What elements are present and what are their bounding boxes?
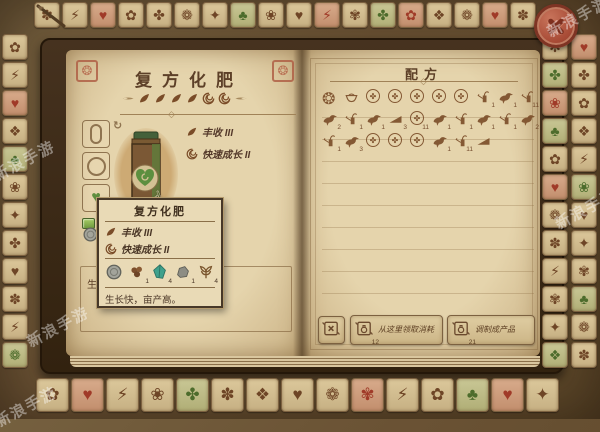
effect-row: 丰收 III [105, 224, 215, 239]
sparkle-icon: ✤ [578, 67, 590, 84]
star-icon: ✦ [549, 319, 561, 336]
heart-card[interactable]: ♥ [286, 2, 312, 28]
clover-icon: ♣ [579, 291, 588, 307]
gem-icon: ❖ [255, 385, 270, 405]
sparkle-card[interactable]: ✤ [571, 62, 597, 88]
flower-icon: ✿ [125, 7, 137, 24]
medallion-stamp: ✤11 [410, 111, 425, 127]
bowl-stamp [344, 89, 359, 105]
star-icon: ✦ [535, 385, 549, 405]
ingredient-count: 4 [214, 278, 218, 285]
petal-icon: ✽ [517, 7, 529, 24]
tooltip-title: 复方化肥 [105, 203, 215, 219]
heart-icon: ♥ [580, 207, 588, 223]
gem-icon: ❖ [9, 123, 22, 140]
flower-card[interactable]: ✿ [398, 2, 424, 28]
blossom-icon: ❀ [578, 179, 590, 196]
heart-card[interactable]: ♥ [71, 378, 104, 412]
craft-product-button[interactable]: 21 调制成产品 [447, 315, 535, 345]
petal-icon: ✽ [220, 385, 234, 405]
swirl-icon [186, 148, 198, 160]
star-card[interactable]: ✦ [542, 314, 568, 340]
blossom-card[interactable]: ❀ [258, 2, 284, 28]
border-tiles-right-outer: ♥✤✿❖⚡❀♥✦✾♣❁✽ [571, 34, 597, 368]
effect-row: 快速成长 II [186, 146, 250, 161]
lightning-card[interactable]: ⚡ [2, 314, 28, 340]
quill-stick-icon [34, 2, 68, 30]
sparkle-card[interactable]: ✤ [176, 378, 209, 412]
tooltip-ingredients: 1414 [105, 261, 215, 285]
circle-icon [87, 157, 106, 176]
slot-capsule[interactable] [82, 120, 110, 148]
gem-card[interactable]: ❖ [542, 342, 568, 368]
heart-icon: ♥ [11, 263, 19, 279]
medallion-stamp: ✤ [366, 133, 381, 149]
effect-row: 丰收 III [186, 124, 250, 139]
petal-card[interactable]: ✽ [510, 2, 536, 28]
heart-icon: ♥ [11, 95, 19, 111]
recipe-row: ❂✤✤✤✤✤1111 [322, 86, 535, 108]
stamp-count: 1 [337, 146, 341, 153]
daisy-card[interactable]: ❁ [2, 342, 28, 368]
medallion-stamp: ✤ [388, 133, 403, 149]
coin-stamp-stamp: ❂ [322, 89, 337, 105]
leaf-icon [154, 92, 167, 105]
can-stamp: 1 [454, 111, 469, 127]
flourish-right-icon [235, 92, 248, 105]
stamp-count: 1 [447, 124, 451, 131]
can-stamp: 11 [520, 89, 535, 105]
swirl-icon [218, 92, 231, 105]
flower-card[interactable]: ✿ [542, 146, 568, 172]
heart-card[interactable]: ♥ [542, 174, 568, 200]
daisy-card[interactable]: ❁ [174, 2, 200, 28]
gem-card[interactable]: ❖ [426, 2, 452, 28]
ingredient-count: 4 [168, 278, 172, 285]
border-tiles-bottom: ✿♥⚡❀✤✽❖♥❁✾⚡✿♣♥✦ [36, 378, 559, 412]
border-tiles-left: ✿⚡♥❖♣❀✦✤♥✽⚡❁ [2, 34, 28, 368]
medallion-stamp: ✤ [432, 89, 447, 105]
flower-card[interactable]: ✿ [36, 378, 69, 412]
flower-icon: ✿ [9, 39, 21, 56]
page-stack-edge [70, 356, 540, 367]
leaf-icon [170, 92, 183, 105]
heart-icon: ♥ [99, 7, 107, 23]
petal-card[interactable]: ✽ [571, 342, 597, 368]
daisy-card[interactable]: ❁ [571, 314, 597, 340]
effect-row: 快速成长 II [105, 241, 215, 256]
lightning-card[interactable]: ⚡ [2, 62, 28, 88]
item-tooltip: 复方化肥 丰收 III快速成长 II 1414 生长快，亩产高。 [97, 198, 223, 308]
daisy-icon: ❁ [181, 7, 193, 24]
stamp-count: 3 [359, 146, 363, 153]
blossom-card[interactable]: ❀ [141, 378, 174, 412]
bloom-icon: ✾ [349, 7, 361, 24]
daisy-icon: ❁ [461, 7, 473, 24]
heart-icon: ♥ [502, 385, 512, 405]
clover-card[interactable]: ♣ [571, 286, 597, 312]
bloom-card[interactable]: ✾ [542, 286, 568, 312]
close-icon [537, 7, 575, 45]
sparkle-card[interactable]: ✤ [370, 2, 396, 28]
coin-gray-ingredient [105, 263, 123, 282]
stamp-count: 1 [447, 146, 451, 153]
lightning-icon: ⚡ [10, 67, 20, 84]
heart-icon: ♥ [491, 7, 499, 23]
bird-stamp: 1 [498, 89, 513, 105]
heart-icon: ♥ [82, 385, 92, 405]
button-badge: 21 [469, 339, 476, 346]
lightning-card[interactable]: ⚡ [314, 2, 340, 28]
gem-icon: ❖ [578, 123, 591, 140]
heart-card[interactable]: ♥ [2, 258, 28, 284]
sparkle-icon: ✤ [9, 235, 21, 252]
gem-icon: ❖ [433, 7, 446, 24]
sparkle-card[interactable]: ✤ [2, 230, 28, 256]
flower-card[interactable]: ✿ [421, 378, 454, 412]
bird-stamp: 1 [432, 111, 447, 127]
sparkle-icon: ✤ [377, 7, 389, 24]
flower-card[interactable]: ✿ [571, 90, 597, 116]
recipe-row: 13✤✤✤111 [322, 130, 535, 152]
slot-circle[interactable] [82, 152, 110, 180]
flower-icon: ✿ [45, 385, 59, 405]
clover-card[interactable]: ♣ [542, 118, 568, 144]
take-consumables-button[interactable]: 12 从这里领取消耗 [350, 315, 443, 345]
effect-label: 丰收 III [121, 224, 152, 239]
effect-label: 快速成长 II [121, 241, 169, 256]
sparkle-icon: ✤ [153, 7, 165, 24]
stamp-count: 3 [403, 124, 407, 131]
heart-card[interactable]: ♥ [482, 2, 508, 28]
clover-icon: ♣ [550, 123, 559, 139]
clover-icon: ♣ [10, 151, 19, 167]
bird-stamp: 2 [520, 111, 535, 127]
heart-card[interactable]: ♥ [571, 202, 597, 228]
flower-icon: ✿ [578, 95, 590, 112]
header-divider [120, 114, 296, 115]
scroll-flask-icon: 21 [452, 318, 471, 343]
lightning-card[interactable]: ⚡ [106, 378, 139, 412]
button-label: 调制成产品 [475, 325, 515, 335]
bird-stamp: 3 [344, 133, 359, 149]
star-icon: ✦ [209, 7, 221, 24]
lightning-card[interactable]: ⚡ [571, 146, 597, 172]
crystal-ingredient: 4 [151, 263, 169, 282]
leaf-icon [186, 126, 198, 138]
daisy-icon: ❁ [325, 385, 339, 405]
can-stamp: 1 [498, 111, 513, 127]
flower-icon: ✿ [430, 385, 444, 405]
gem-card[interactable]: ❖ [2, 118, 28, 144]
flower-card[interactable]: ✿ [2, 34, 28, 60]
daisy-card[interactable]: ❁ [316, 378, 349, 412]
star-card[interactable]: ✦ [202, 2, 228, 28]
heart-card[interactable]: ♥ [2, 90, 28, 116]
medallion-stamp: ✤ [410, 89, 425, 105]
stamp-count: 1 [513, 124, 517, 131]
lightning-icon: ⚡ [10, 319, 20, 336]
bird-stamp: 1 [366, 111, 381, 127]
plow-stamp [476, 133, 491, 149]
tooltip-description: 生长快，亩产高。 [105, 290, 215, 306]
medallion-stamp: ✤ [388, 89, 403, 105]
blossom-icon: ❀ [549, 95, 561, 112]
button-badge: 12 [372, 339, 379, 346]
petal-card[interactable]: ✽ [211, 378, 244, 412]
hemp-ingredient: 4 [197, 263, 215, 282]
stamp-count: 1 [491, 124, 495, 131]
daisy-card[interactable]: ❁ [542, 202, 568, 228]
leaf-icon [186, 92, 199, 105]
border-tiles-top: ✽⚡♥✿✤❁✦♣❀♥⚡✾✤✿❖❁♥✽ [34, 2, 536, 28]
leaf-icon [138, 92, 151, 105]
game-screen: { "watermark": "新浪手游", "left_page": { "t… [0, 0, 600, 419]
stamp-count: 11 [532, 102, 539, 109]
petal-icon: ✽ [9, 291, 21, 308]
stamp-count: 11 [422, 124, 429, 131]
blossom-card[interactable]: ❀ [571, 174, 597, 200]
stone-ingredient: 1 [174, 263, 192, 282]
flower-icon: ✿ [405, 7, 417, 24]
sparkle-card[interactable]: ✤ [542, 62, 568, 88]
plow-stamp: 3 [388, 111, 403, 127]
effect-label: 丰收 III [202, 124, 233, 139]
swirl-icon [202, 92, 215, 105]
bloom-card[interactable]: ✾ [351, 378, 384, 412]
daisy-card[interactable]: ❁ [454, 2, 480, 28]
recipe-row: 2113✤1111112 [322, 108, 535, 130]
scroll-x-icon [322, 318, 341, 343]
can-stamp: 11 [454, 133, 469, 149]
clear-recipe-button[interactable] [318, 316, 345, 344]
lightning-card[interactable]: ⚡ [542, 258, 568, 284]
lightning-icon: ⚡ [397, 385, 409, 405]
star-icon: ✦ [578, 235, 590, 252]
clover-card[interactable]: ♣ [230, 2, 256, 28]
petal-card[interactable]: ✽ [2, 286, 28, 312]
daisy-icon: ❁ [549, 207, 561, 224]
blossom-icon: ❀ [265, 7, 277, 24]
title-flourish [66, 92, 302, 105]
scroll-flask-icon: 12 [355, 318, 374, 343]
stamp-count: 1 [359, 124, 363, 131]
bird-stamp: 1 [476, 111, 491, 127]
effect-list: 丰收 III快速成长 II [186, 124, 250, 161]
bloom-icon: ✾ [360, 385, 374, 405]
stamp-count: 1 [469, 124, 473, 131]
blossom-icon: ❀ [150, 385, 164, 405]
clover-card[interactable]: ♣ [456, 378, 489, 412]
star-card[interactable]: ✦ [526, 378, 559, 412]
gem-card[interactable]: ❖ [246, 378, 279, 412]
blossom-card[interactable]: ❀ [2, 174, 28, 200]
heart-icon: ♥ [551, 179, 559, 195]
star-icon: ✦ [9, 207, 21, 224]
clover-icon: ♣ [238, 7, 247, 23]
petal-icon: ✽ [578, 347, 590, 364]
lightning-icon: ⚡ [550, 263, 560, 280]
leaf-icon [105, 226, 117, 238]
flourish-icons [138, 92, 231, 105]
bloom-card[interactable]: ✾ [342, 2, 368, 28]
divider-diamond-icon: ◇ [168, 109, 175, 120]
sparkle-icon: ✤ [549, 67, 561, 84]
medallion-stamp: ✤ [366, 89, 381, 105]
border-tiles-right-inner: ✻✤❀♣✿♥❁✽⚡✾✦❖ [542, 34, 568, 368]
flourish-left-icon [121, 92, 134, 105]
lightning-icon: ⚡ [70, 7, 80, 24]
stamp-count: 1 [491, 102, 495, 109]
bird-stamp: 2 [322, 111, 337, 127]
heart-icon: ♥ [580, 39, 588, 55]
star-card[interactable]: ✦ [571, 230, 597, 256]
clover-icon: ♣ [467, 385, 478, 405]
heart-card[interactable]: ♥ [491, 378, 524, 412]
heart-icon: ♥ [295, 7, 303, 23]
lightning-card[interactable]: ⚡ [386, 378, 419, 412]
lightning-icon: ⚡ [117, 385, 129, 405]
heart-card[interactable]: ♥ [90, 2, 116, 28]
effect-label: 快速成长 II [202, 146, 250, 161]
stamp-count: 2 [337, 124, 341, 131]
bird-stamp: 1 [432, 133, 447, 149]
close-button[interactable] [534, 4, 578, 48]
berries-ingredient: 1 [128, 263, 146, 282]
heart-icon: ♥ [292, 385, 302, 405]
gem-card[interactable]: ❖ [571, 118, 597, 144]
flower-card[interactable]: ✿ [118, 2, 144, 28]
blossom-card[interactable]: ❀ [542, 90, 568, 116]
petal-card[interactable]: ✽ [542, 230, 568, 256]
sparkle-icon: ✤ [185, 385, 199, 405]
can-stamp: 1 [322, 133, 337, 149]
heart-card[interactable]: ♥ [281, 378, 314, 412]
stamp-count: 1 [381, 124, 385, 131]
bloom-icon: ✾ [549, 291, 561, 308]
stamp-count: 11 [466, 146, 473, 153]
flower-icon: ✿ [549, 151, 561, 168]
lightning-icon: ⚡ [322, 7, 332, 24]
daisy-icon: ❁ [9, 347, 21, 364]
recipe-rows: ❂✤✤✤✤✤11112113✤111111213✤✤✤111 [322, 86, 535, 152]
stamp-count: 1 [513, 102, 517, 109]
bloom-card[interactable]: ✾ [571, 258, 597, 284]
sparkle-card[interactable]: ✤ [146, 2, 172, 28]
tooltip-effects: 丰收 III快速成长 II [105, 224, 215, 256]
refresh-icon[interactable]: ↻ [113, 119, 122, 132]
lightning-icon: ⚡ [579, 151, 589, 168]
ingredient-count: 1 [145, 278, 149, 285]
petal-icon: ✽ [549, 235, 561, 252]
page-title: 复方化肥 [66, 66, 302, 91]
star-card[interactable]: ✦ [2, 202, 28, 228]
can-stamp: 1 [344, 111, 359, 127]
clover-card[interactable]: ♣ [2, 146, 28, 172]
button-label: 从这里领取消耗 [378, 325, 434, 335]
daisy-icon: ❁ [578, 319, 590, 336]
gem-icon: ❖ [549, 347, 562, 364]
capsule-icon [90, 124, 102, 144]
medallion-stamp: ✤ [454, 89, 469, 105]
ingredient-count: 1 [191, 278, 195, 285]
swirl-icon [105, 243, 117, 255]
blossom-icon: ❀ [9, 179, 21, 196]
stamp-count: 2 [535, 124, 539, 131]
bloom-icon: ✾ [578, 263, 590, 280]
medallion-stamp: ✤ [410, 133, 425, 149]
can-stamp: 1 [476, 89, 491, 105]
